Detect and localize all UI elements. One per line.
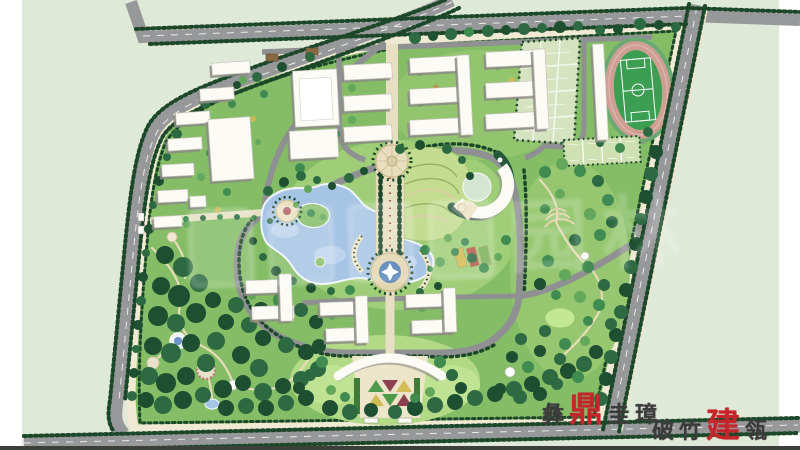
tree xyxy=(534,345,546,357)
tree xyxy=(304,185,312,193)
putting-green xyxy=(545,308,575,328)
building xyxy=(483,81,536,101)
tree xyxy=(148,306,168,326)
gate-structure xyxy=(364,418,378,423)
tree xyxy=(609,328,623,342)
tree xyxy=(307,209,315,217)
tree xyxy=(556,158,568,170)
tree xyxy=(294,303,308,317)
building-roof xyxy=(344,94,393,111)
main-hall-roof xyxy=(299,77,333,121)
building-roof xyxy=(279,274,293,321)
tree xyxy=(260,90,268,98)
tree xyxy=(501,235,511,245)
building xyxy=(205,117,254,184)
building-roof xyxy=(406,293,446,307)
garden-node xyxy=(458,204,466,212)
tree xyxy=(217,214,223,220)
tree xyxy=(425,387,435,397)
building-roof xyxy=(162,163,195,177)
tree xyxy=(132,345,140,353)
tree xyxy=(168,285,190,307)
building-roof xyxy=(410,118,461,136)
tree xyxy=(671,22,681,32)
tree xyxy=(298,344,314,360)
lake-highlight xyxy=(271,222,299,238)
tree xyxy=(479,263,489,273)
building xyxy=(407,56,460,76)
building xyxy=(341,94,392,114)
tree xyxy=(235,375,251,391)
building xyxy=(151,215,182,230)
tree xyxy=(522,361,534,373)
building xyxy=(341,63,392,83)
tree xyxy=(388,405,402,419)
tree xyxy=(533,387,547,401)
fountain-pool xyxy=(174,337,182,345)
tree xyxy=(594,392,608,406)
tree xyxy=(214,380,232,398)
building xyxy=(187,196,206,210)
tree xyxy=(466,172,474,180)
building-roof xyxy=(410,87,461,105)
tree xyxy=(177,367,195,385)
tree xyxy=(161,343,181,363)
tree xyxy=(127,391,137,401)
tree xyxy=(195,387,211,403)
building-roof xyxy=(486,112,537,130)
tree xyxy=(410,393,420,403)
building-roof xyxy=(212,61,251,76)
tree xyxy=(348,84,356,92)
tree xyxy=(293,202,299,208)
tree xyxy=(644,167,658,181)
building-roof xyxy=(154,215,183,227)
tree xyxy=(255,330,271,346)
garden-node xyxy=(167,232,177,242)
tree xyxy=(190,274,208,292)
tree xyxy=(238,398,254,414)
tree xyxy=(305,52,315,62)
tree xyxy=(619,283,633,297)
tree xyxy=(172,129,182,139)
tree xyxy=(494,253,502,261)
building-roof xyxy=(486,81,537,99)
tree xyxy=(420,245,430,255)
tree xyxy=(278,395,294,411)
pergola xyxy=(266,54,278,61)
building xyxy=(159,163,194,179)
tree xyxy=(461,238,469,246)
tree xyxy=(322,400,338,416)
tree xyxy=(200,215,206,221)
tree xyxy=(205,292,221,308)
tree xyxy=(542,255,554,267)
tree xyxy=(293,382,305,394)
tree xyxy=(506,351,518,363)
tree xyxy=(320,214,326,220)
tree xyxy=(138,392,154,408)
building xyxy=(155,189,188,205)
tree xyxy=(326,385,336,395)
tree xyxy=(446,369,458,381)
building xyxy=(407,87,460,107)
tree xyxy=(551,290,561,300)
tree xyxy=(427,397,443,413)
building xyxy=(483,50,536,70)
building xyxy=(277,274,293,324)
tree xyxy=(344,173,354,183)
tree xyxy=(296,171,306,181)
building xyxy=(341,125,392,145)
tree xyxy=(559,338,571,350)
tree xyxy=(445,28,457,40)
tree xyxy=(584,208,596,220)
tree xyxy=(149,201,157,209)
tree xyxy=(595,25,605,35)
tree xyxy=(501,25,511,35)
tree xyxy=(605,318,617,330)
building xyxy=(173,111,210,128)
tree xyxy=(569,234,581,246)
gate-structure xyxy=(138,213,144,221)
tree xyxy=(304,369,316,381)
tree xyxy=(467,390,483,406)
building-roof xyxy=(200,87,235,101)
tree xyxy=(250,359,268,377)
tree xyxy=(539,325,551,337)
tree xyxy=(551,378,563,390)
tree xyxy=(342,404,358,420)
tree xyxy=(142,249,150,257)
building-roof xyxy=(168,137,203,151)
tree xyxy=(606,216,618,228)
tree xyxy=(255,139,261,145)
tree xyxy=(348,116,356,124)
building-roof xyxy=(208,117,254,182)
tree xyxy=(345,285,355,295)
tree xyxy=(279,177,289,187)
tree xyxy=(167,314,185,332)
tree xyxy=(218,314,234,330)
tree xyxy=(232,346,250,364)
tree xyxy=(574,291,586,303)
building xyxy=(403,293,446,310)
tree xyxy=(592,175,604,187)
tree xyxy=(582,261,594,273)
building xyxy=(483,112,536,132)
tree xyxy=(223,188,231,196)
tree xyxy=(494,383,506,395)
bottom-border-line xyxy=(0,446,800,450)
building xyxy=(197,87,234,104)
building xyxy=(441,288,457,335)
tree xyxy=(634,18,646,30)
gate-structure xyxy=(398,418,412,423)
tree xyxy=(259,253,267,261)
tree xyxy=(313,176,321,184)
tree xyxy=(207,332,225,350)
tree xyxy=(275,378,291,394)
tree xyxy=(464,27,474,37)
tree xyxy=(254,383,272,401)
tree xyxy=(515,333,527,345)
tree xyxy=(428,31,438,41)
tree xyxy=(635,213,647,225)
building-roof xyxy=(176,111,211,125)
tree xyxy=(614,305,628,319)
tree xyxy=(572,371,584,383)
building-roof xyxy=(158,189,189,203)
pavilion xyxy=(581,252,589,260)
tree xyxy=(218,400,234,416)
building xyxy=(165,137,202,154)
tree xyxy=(598,279,610,291)
tree xyxy=(228,297,244,313)
tree xyxy=(537,23,547,33)
tree xyxy=(163,153,171,161)
tree xyxy=(554,21,566,33)
tree xyxy=(482,25,494,37)
tree xyxy=(409,32,421,44)
building-roof xyxy=(190,196,207,208)
tree xyxy=(316,356,328,368)
tree xyxy=(278,337,294,353)
tree xyxy=(136,296,146,306)
tree xyxy=(604,350,618,364)
tree xyxy=(156,246,174,264)
tree xyxy=(129,368,139,378)
tree xyxy=(395,144,405,154)
tree xyxy=(589,345,603,359)
masterplan-rendering: 园 林 彝鼎圭璋 破竹建瓴 xyxy=(0,0,800,450)
tree xyxy=(434,282,442,290)
library-pavilion xyxy=(498,158,503,163)
tree xyxy=(250,116,256,122)
west-plaza-feature xyxy=(283,207,291,215)
tree xyxy=(574,165,586,177)
tree xyxy=(174,391,192,409)
tree xyxy=(594,229,606,241)
tree xyxy=(328,182,336,190)
tree xyxy=(415,140,425,150)
tree xyxy=(263,186,273,196)
tree xyxy=(534,278,546,290)
tree xyxy=(540,204,550,214)
building xyxy=(287,129,339,162)
tree xyxy=(444,234,452,242)
tree xyxy=(554,353,566,365)
tree xyxy=(613,24,623,34)
tree xyxy=(580,336,590,346)
hall-roof-core xyxy=(299,77,333,121)
building-roof xyxy=(410,56,461,74)
tree xyxy=(267,218,273,224)
building xyxy=(209,61,250,78)
tree xyxy=(573,21,583,31)
tree xyxy=(427,266,433,272)
tree xyxy=(182,334,200,352)
building-roof xyxy=(344,63,393,80)
tree xyxy=(649,145,663,159)
tree xyxy=(458,156,466,164)
tree xyxy=(447,394,463,410)
site-plan-drawing xyxy=(0,0,800,450)
gate-structure xyxy=(138,226,144,234)
tree xyxy=(360,167,368,175)
tree xyxy=(144,337,162,355)
tree xyxy=(252,72,262,82)
tree xyxy=(277,62,287,72)
building-roof xyxy=(355,296,369,343)
building-roof xyxy=(486,50,537,68)
tree xyxy=(654,20,664,30)
tree xyxy=(539,166,551,178)
tree xyxy=(152,277,170,295)
tree xyxy=(435,257,445,267)
tree xyxy=(239,76,247,84)
tree xyxy=(258,400,274,416)
tree xyxy=(451,248,459,256)
tree xyxy=(467,253,477,263)
tree xyxy=(593,299,605,311)
tree xyxy=(615,143,625,153)
building-roof xyxy=(289,129,338,159)
tree xyxy=(555,189,565,199)
tree xyxy=(215,207,221,213)
tree xyxy=(234,214,240,220)
building-roof xyxy=(344,125,393,142)
tree xyxy=(197,354,215,372)
north-plaza-monument xyxy=(387,156,397,166)
tree xyxy=(364,403,378,417)
tree xyxy=(624,260,638,274)
lake-islet xyxy=(315,257,325,267)
building xyxy=(353,296,369,346)
tree xyxy=(559,269,571,281)
building xyxy=(407,118,460,138)
tree xyxy=(327,287,335,295)
tree xyxy=(513,390,527,404)
tree xyxy=(306,283,316,293)
tree xyxy=(173,257,193,277)
tree xyxy=(583,316,593,326)
tree xyxy=(156,373,176,393)
tree xyxy=(197,173,205,181)
tree xyxy=(518,23,530,35)
tree xyxy=(442,144,452,154)
tree xyxy=(629,237,643,251)
tree xyxy=(602,194,614,206)
tree xyxy=(599,372,613,386)
tree xyxy=(133,320,143,330)
tree xyxy=(639,190,653,204)
tree xyxy=(340,392,350,402)
tree xyxy=(183,216,189,222)
pavilion xyxy=(505,367,515,377)
tree xyxy=(251,215,257,221)
tree xyxy=(434,356,446,368)
tree xyxy=(455,382,467,394)
tree xyxy=(138,272,148,282)
tree xyxy=(576,356,592,372)
tree xyxy=(249,237,257,245)
tree xyxy=(186,303,206,323)
tree xyxy=(154,396,172,414)
tree xyxy=(643,127,653,137)
building-roof xyxy=(443,288,457,332)
tree xyxy=(140,367,158,385)
